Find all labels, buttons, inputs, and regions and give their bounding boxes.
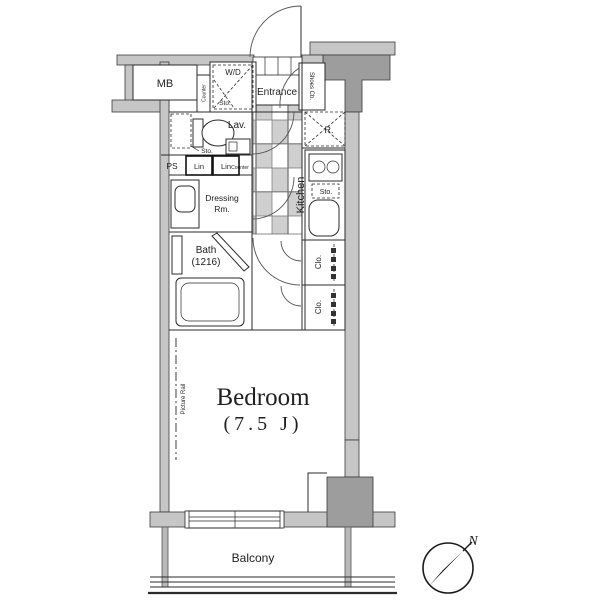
closet-top-outline xyxy=(305,240,345,285)
bath-counter xyxy=(172,236,182,274)
bath-label-1: Bath xyxy=(196,245,217,256)
meter-box: MB xyxy=(133,65,197,100)
bathroom: Bath (1216) xyxy=(172,233,249,326)
wall-top-right-band xyxy=(310,42,395,55)
entrance-door-arc xyxy=(250,6,301,57)
bedroom-size-label: (7.5 J) xyxy=(223,413,302,435)
compass-n-label: N xyxy=(467,534,478,549)
washer-dryer-area: W/D Sto. Counter xyxy=(197,62,256,112)
mb-label: MB xyxy=(157,78,174,90)
closet-bottom-door-arc xyxy=(281,286,301,306)
bedroom-window xyxy=(187,511,282,528)
pillar-top-right xyxy=(323,55,390,112)
closet-bottom-outline xyxy=(305,285,345,330)
bedroom-step-outline xyxy=(308,473,327,512)
pillar-bottom-right xyxy=(327,477,373,527)
floor-plan-image: MB Entrance W/D Sto. Counter Shoes Cb. xyxy=(0,0,600,600)
lin2-label: Lin xyxy=(221,162,231,171)
bedroom-label: Bedroom xyxy=(216,384,310,411)
sink-icon xyxy=(309,200,339,236)
wall-left xyxy=(160,62,169,512)
bedroom: Bedroom (7.5 J) Picture Rail xyxy=(176,338,310,460)
closet-top-label: Clo. xyxy=(314,255,323,269)
entrance-sill xyxy=(253,57,302,75)
compass: N xyxy=(423,534,478,593)
picture-rail-label: Picture Rail xyxy=(181,384,187,415)
fridge-label: R. xyxy=(325,125,334,135)
counter-box xyxy=(226,139,250,154)
balcony-railing-lines xyxy=(150,577,395,587)
balcony-post-left xyxy=(162,527,168,587)
kitchen-sto-label: Sto. xyxy=(320,189,333,196)
storage-row: PS Lin Lin Counter xyxy=(166,139,250,175)
entrance-label: Entrance xyxy=(257,87,297,98)
balcony-post-right xyxy=(345,527,351,587)
bedroom-door-arc xyxy=(253,238,300,285)
ps-label: PS xyxy=(166,161,178,171)
closet-top-door-arc xyxy=(281,241,301,261)
lin1-label: Lin xyxy=(194,162,204,171)
kitchen-label: Kitchen xyxy=(295,177,307,214)
compass-circle-icon xyxy=(423,543,473,593)
window-end-left xyxy=(185,511,189,528)
wall-right-step xyxy=(345,440,359,477)
bathtub-icon xyxy=(176,278,244,326)
shoes-label: Shoes Cb. xyxy=(308,72,314,100)
vanity-basin-icon xyxy=(175,186,195,212)
lav-label: Lav. xyxy=(228,120,246,131)
wd-label: W/D xyxy=(225,68,241,77)
hallway-tile-floor xyxy=(253,105,302,234)
wd-sto-label: Sto. xyxy=(219,100,231,107)
counter-label: Counter xyxy=(231,165,249,171)
stove-icon xyxy=(309,154,342,181)
dressing-label-1: Dressing xyxy=(205,193,239,203)
wall-right xyxy=(345,112,359,440)
wd-counter-label: Counter xyxy=(202,84,208,102)
lav-sto-dashed xyxy=(171,114,191,148)
floor-plan-svg: MB Entrance W/D Sto. Counter Shoes Cb. xyxy=(0,0,600,600)
dressing-label-2: Rm. xyxy=(214,204,230,214)
balcony-label: Balcony xyxy=(232,551,275,565)
bath-label-2: (1216) xyxy=(192,257,221,268)
window-end-right xyxy=(280,511,284,528)
wall-mb-left xyxy=(125,65,133,105)
closets: Clo. Clo. xyxy=(281,240,345,330)
lav-sto-label: Sto. xyxy=(201,148,213,155)
closet-bottom-label: Clo. xyxy=(314,300,323,314)
entrance-door xyxy=(250,6,301,57)
